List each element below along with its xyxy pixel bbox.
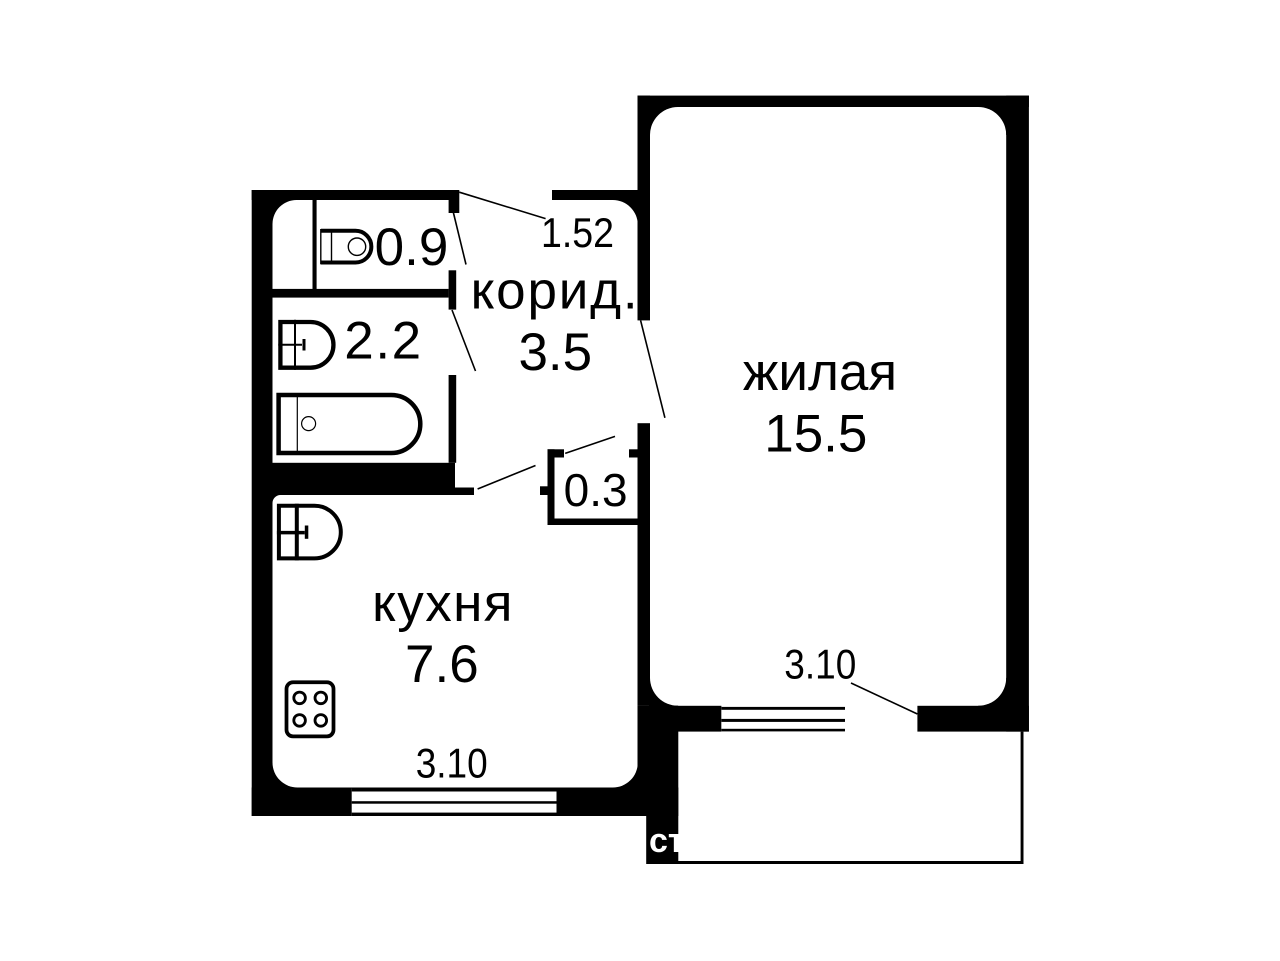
svg-text:3.10: 3.10 bbox=[784, 640, 856, 687]
svg-text:3.10: 3.10 bbox=[416, 740, 488, 787]
svg-text:ст: ст bbox=[649, 822, 685, 860]
svg-text:корид.: корид. bbox=[471, 262, 640, 321]
svg-text:жилая: жилая bbox=[743, 343, 897, 402]
svg-text:7.6: 7.6 bbox=[405, 635, 479, 694]
svg-text:0.3: 0.3 bbox=[564, 464, 628, 516]
svg-text:3.5: 3.5 bbox=[518, 323, 592, 382]
svg-text:1.52: 1.52 bbox=[541, 209, 614, 256]
svg-text:15.5: 15.5 bbox=[764, 404, 867, 463]
svg-text:0.9: 0.9 bbox=[375, 218, 449, 277]
svg-text:2.2: 2.2 bbox=[344, 312, 422, 371]
svg-text:кухня: кухня bbox=[372, 574, 514, 633]
